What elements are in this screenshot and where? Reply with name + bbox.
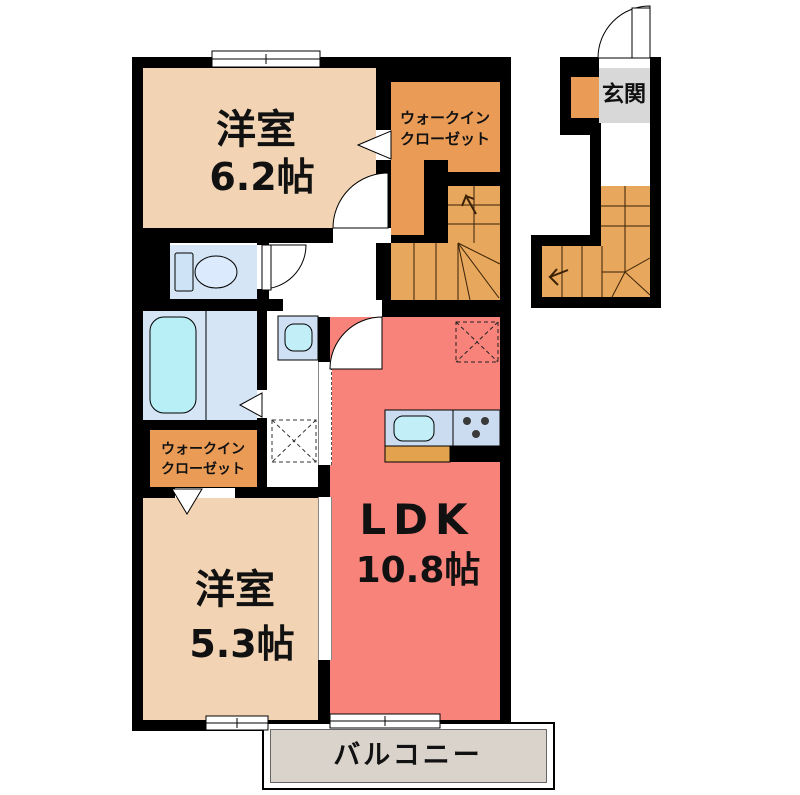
- kitchen-counter: [385, 410, 500, 462]
- wic-upper-label-line1: ウォークイン: [400, 111, 490, 127]
- washbasin-icon: [278, 316, 318, 360]
- stairs-entrance-treads: [562, 186, 650, 297]
- wic-lower-door-marker: [172, 489, 202, 514]
- wic-lower-label-line2: クローゼット: [161, 463, 245, 478]
- window-bedroom2: [206, 716, 268, 730]
- counter-top: [385, 446, 450, 462]
- wic-lower-label-line1: ウォークイン: [161, 443, 245, 458]
- genkan-label: 玄関: [602, 83, 646, 106]
- floor-plan: 洋室 6.2帖 ウォークイン クローゼット 玄関 LDK 10.8帖 ウォークイ…: [0, 0, 800, 795]
- refrigerator-space: [456, 322, 498, 362]
- kitchen-sink-icon: [394, 416, 434, 441]
- stairs-entrance-arrow: [550, 269, 568, 285]
- wic-upper-label-line2: クローゼット: [400, 132, 490, 148]
- toilet-icon: [175, 253, 237, 291]
- toilet-door-swing: [257, 245, 306, 290]
- window-bedroom1: [212, 51, 320, 67]
- bedroom1-size-label: 6.2帖: [209, 158, 314, 198]
- ldk-name-label: LDK: [359, 498, 474, 542]
- bathroom-door-marker: [240, 390, 269, 418]
- bedroom1-door-swing: [333, 173, 388, 228]
- bedroom1-name-label: 洋室: [216, 109, 296, 151]
- entrance-door-swing: [598, 6, 650, 58]
- wic-upper-door-marker: [358, 130, 391, 160]
- balcony-label: バルコニー: [333, 742, 482, 770]
- ldk-door-swing: [330, 317, 382, 369]
- bathtub-icon: [150, 311, 206, 420]
- window-ldk-balcony: [330, 714, 440, 728]
- bedroom2-name-label: 洋室: [195, 569, 275, 611]
- stairs-main-treads: [414, 186, 500, 300]
- ldk-size-label: 10.8帖: [356, 552, 481, 590]
- bedroom2-size-label: 5.3帖: [189, 625, 294, 665]
- washing-machine-space: [272, 420, 316, 462]
